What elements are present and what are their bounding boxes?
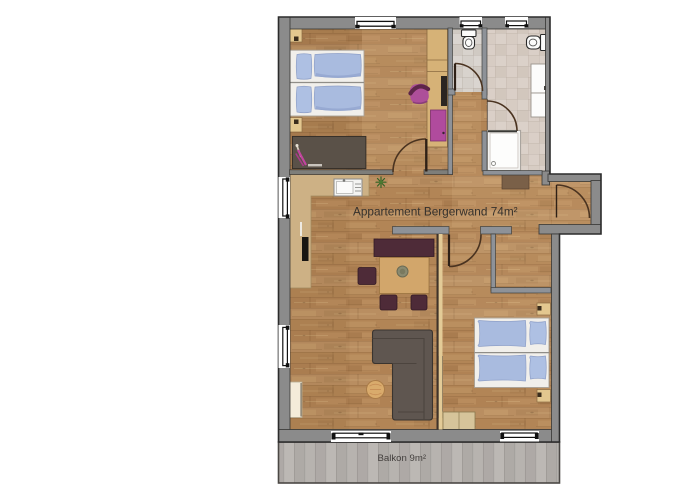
svg-text:Appartement Bergerwand 74m²: Appartement Bergerwand 74m² — [353, 205, 518, 219]
svg-text:Balkon 9m²: Balkon 9m² — [378, 453, 427, 464]
